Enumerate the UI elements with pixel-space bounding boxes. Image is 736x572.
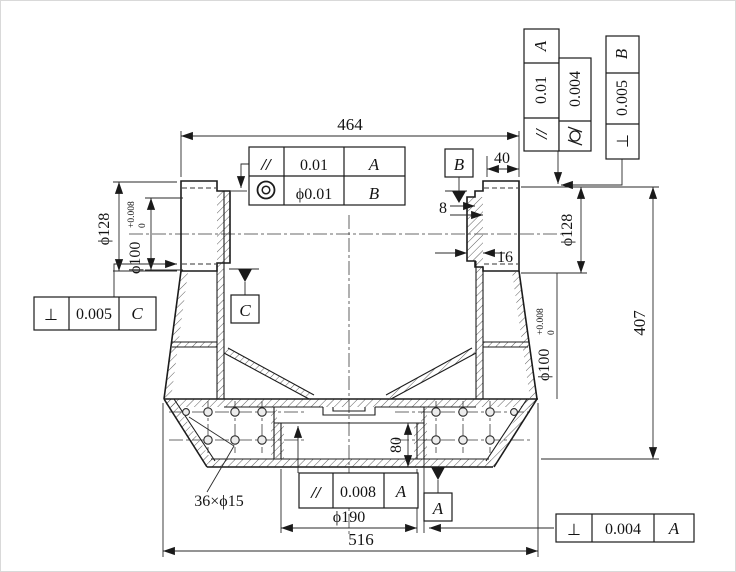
technical-drawing-sheet: 464 40 8 16 ϕ128 ϕ100 +0.008 0 [0, 0, 736, 572]
svg-text:0.005: 0.005 [614, 80, 631, 116]
svg-text:ϕ100: ϕ100 [127, 242, 144, 274]
dim-8: 8 [439, 200, 447, 217]
dim-80: 80 [388, 437, 405, 453]
svg-text:0.005: 0.005 [76, 306, 112, 323]
svg-text:B: B [612, 48, 631, 59]
perpendicularity-icon: ⊥ [44, 305, 58, 324]
perpendicularity-icon: ⊥ [613, 134, 632, 148]
svg-text:0.01: 0.01 [533, 76, 550, 104]
fcf-top-center: // 0.01 A ϕ0.01 B [231, 147, 405, 205]
dim-407: 407 [630, 310, 649, 336]
dim-464: 464 [337, 115, 363, 134]
svg-text:B: B [454, 155, 465, 174]
holes-note: 36×ϕ15 [194, 493, 243, 510]
dim-phi128-right: ϕ128 [559, 214, 576, 246]
svg-text:+0.008: +0.008 [536, 308, 546, 335]
dim-phi190: ϕ190 [333, 509, 365, 526]
svg-text:A: A [395, 482, 407, 501]
datum-b: B [445, 149, 473, 203]
svg-text:ϕ100: ϕ100 [536, 349, 553, 381]
fcf-vertical-parallel: // 0.01 A [524, 29, 559, 184]
svg-text:A: A [368, 155, 380, 174]
svg-text:B: B [369, 184, 380, 203]
svg-text:0.004: 0.004 [567, 71, 584, 107]
fcf-bottom-perpendicular: ⊥ 0.004 A [424, 459, 694, 542]
fcf-left-perpendicular: ⊥ 0.005 C [34, 264, 177, 330]
perpendicularity-icon: ⊥ [567, 520, 581, 539]
fcf-vertical-cylindricity: 0.004 [559, 58, 591, 151]
svg-text:0.01: 0.01 [300, 157, 328, 174]
bolt-holes [183, 408, 518, 444]
svg-text:C: C [239, 301, 251, 320]
dim-16: 16 [497, 249, 513, 266]
svg-text:ϕ0.01: ϕ0.01 [296, 186, 332, 203]
dim-40: 40 [494, 150, 510, 167]
dim-phi128-left: ϕ128 [96, 213, 113, 245]
dim-phi100-left: ϕ100 +0.008 0 [127, 201, 148, 274]
svg-text:A: A [668, 519, 680, 538]
svg-text:0: 0 [547, 330, 557, 335]
dim-phi100-right: ϕ100 +0.008 0 [536, 308, 557, 381]
svg-text:0.008: 0.008 [340, 484, 376, 501]
svg-text:A: A [432, 499, 444, 518]
svg-text:0: 0 [138, 223, 148, 228]
section-hatching [164, 191, 537, 467]
dim-516: 516 [348, 530, 374, 549]
datum-a: A [424, 467, 452, 521]
svg-text:A: A [531, 40, 550, 52]
datum-c: C [229, 269, 259, 323]
svg-text:+0.008: +0.008 [127, 201, 137, 228]
drawing-svg: 464 40 8 16 ϕ128 ϕ100 +0.008 0 [1, 1, 736, 572]
svg-text:C: C [131, 304, 143, 323]
svg-text:0.004: 0.004 [605, 521, 641, 538]
